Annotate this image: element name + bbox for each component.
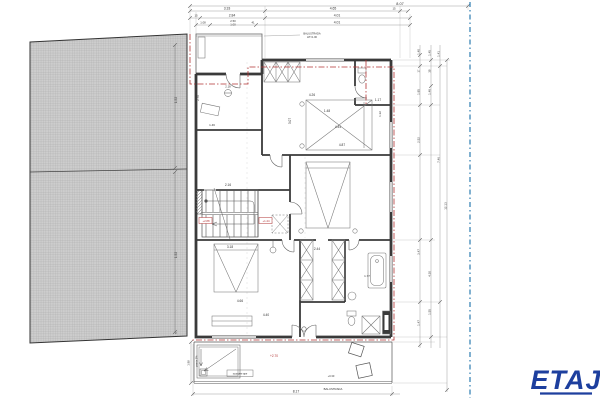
toilet-2 <box>347 311 356 325</box>
dimension-label: 4.01 <box>334 21 341 25</box>
dimension-label: 2.44 <box>314 247 320 251</box>
shower <box>362 316 380 334</box>
dimension-label: 8.17 <box>293 390 300 394</box>
dimension-label: BALUSTRADA <box>324 387 343 391</box>
dimension-label: 2.16 <box>225 183 231 187</box>
dimension-label: 1.32 <box>378 111 382 117</box>
roof-overhang-line <box>190 34 394 340</box>
drain-slope-line <box>204 349 236 371</box>
dimension-label: HT=1.00 <box>307 35 318 39</box>
dimension-label: 4.44 <box>335 125 341 129</box>
dimension-label: 3.33 <box>224 7 231 11</box>
dimension-label: 4.40 <box>263 313 269 317</box>
dimension-label: 4.66 <box>237 299 243 303</box>
level-label: +2.88 <box>202 219 210 223</box>
dimension-label: 15 <box>392 7 396 11</box>
dimension-label: 2.84 <box>229 14 236 18</box>
wardrobe-columns <box>300 240 345 300</box>
dimension-label: scurgere ape <box>233 373 248 376</box>
dimension-label: 15 <box>194 14 198 18</box>
dimension-label: 1.77 <box>364 274 370 278</box>
dimension-label: 1.48 <box>324 109 330 113</box>
stair-void <box>272 215 288 233</box>
dimension-label: 1.85 <box>417 89 421 95</box>
dimension-label: 41 <box>251 21 255 25</box>
dimension-label: 4.26 <box>309 93 315 97</box>
dimension-label: 12.13 <box>444 202 448 210</box>
dimension-label: 1.47 <box>417 320 421 326</box>
floor-plan-drawing: 8.073.334.6515152.844.011.082.501.00414.… <box>0 0 600 400</box>
dimension-label: panta 2% <box>195 355 199 367</box>
interior-walls <box>196 60 391 337</box>
terrace-furniture-1 <box>348 342 364 356</box>
survey-markers <box>225 90 277 254</box>
roof-hatch-area <box>30 34 187 343</box>
exterior-walls <box>196 60 391 338</box>
dimension-label: 4.87 <box>339 143 345 147</box>
dimension-label: 3.07 <box>288 118 292 124</box>
dimension-label: 1.46 <box>209 123 215 127</box>
dimension-label: 1.55 <box>428 309 432 315</box>
dimension-label: 2.70 <box>196 95 200 101</box>
terrace <box>194 342 392 384</box>
dimension-label: 4.30 <box>428 271 432 277</box>
toilet-1 <box>358 68 366 83</box>
dimension-label: 1.08 <box>200 21 206 25</box>
floor-plan-sheet: 8.073.334.6515152.844.011.082.501.00414.… <box>0 0 600 400</box>
dimension-label: BALUSTRADA <box>303 32 321 36</box>
dimension-label: 2.52 <box>417 137 421 143</box>
dimension-label: +0.30 <box>328 374 335 378</box>
level-label: +2.70 <box>270 354 278 358</box>
dimension-label: 1.52 <box>174 252 178 258</box>
dimension-label: 1.52 <box>174 97 178 103</box>
staircase <box>202 188 258 239</box>
drawing-title: ETAJ <box>530 365 600 395</box>
dimension-label: 2.18 <box>225 85 231 89</box>
dimension-label: 1.00 <box>230 22 236 26</box>
bathtub <box>368 253 386 288</box>
terrace-furniture-2 <box>356 363 372 379</box>
dimension-label: 1.17 <box>375 98 381 102</box>
dimension-label: 1.98 <box>187 360 191 366</box>
dimension-label: 4.01 <box>334 14 341 18</box>
bed-3 <box>214 244 258 292</box>
page-title: ETAJ <box>530 365 600 395</box>
drain <box>200 369 207 376</box>
dimension-label: 1.45 <box>428 50 432 56</box>
level-label: +1.44 <box>262 219 270 223</box>
dimension-label: 8.07 <box>396 2 403 6</box>
dimension-label: 4.65 <box>330 7 337 11</box>
dimension-label: 3.47 <box>417 249 421 255</box>
level-markers <box>199 218 272 224</box>
sink <box>348 292 356 300</box>
dimension-label: 1.41 <box>437 51 441 57</box>
wardrobe-top <box>264 62 300 82</box>
bed-2 <box>299 162 357 233</box>
dimension-label: 7.46 <box>437 157 441 163</box>
furniture <box>200 62 390 334</box>
dimension-label: 1.40 <box>417 49 421 55</box>
dimension-label: 1.48 <box>428 89 432 95</box>
dimension-label: 3.18 <box>227 245 233 249</box>
